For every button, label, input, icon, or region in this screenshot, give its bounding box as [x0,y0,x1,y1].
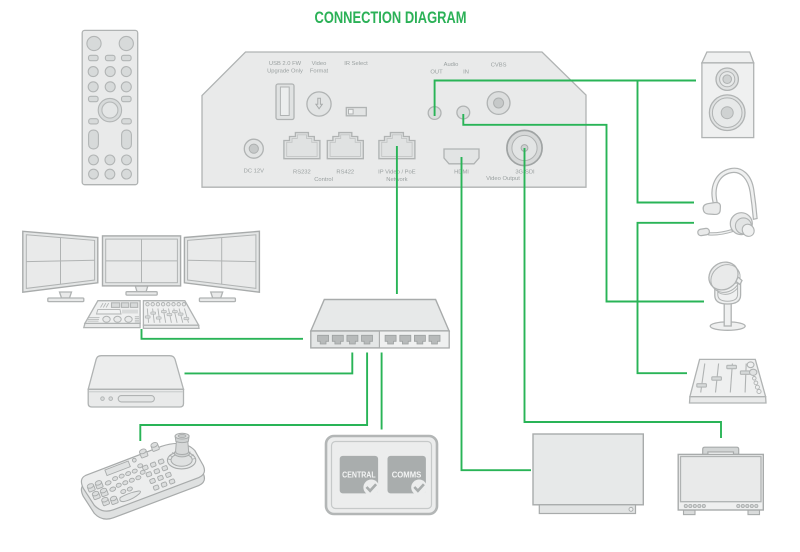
svg-text:DC 12V: DC 12V [244,169,264,175]
svg-text:CVBS: CVBS [491,63,507,69]
svg-text:RS232: RS232 [293,170,311,176]
svg-text:Video: Video [312,61,327,67]
svg-text:IR Select: IR Select [344,61,368,67]
svg-text:USB 2.0 FW: USB 2.0 FW [269,61,302,67]
svg-text:IN: IN [463,70,469,76]
svg-text:Video Output: Video Output [486,176,520,182]
svg-text:COMMS: COMMS [392,470,422,480]
svg-text:Format: Format [310,69,329,75]
svg-text:CENTRAL: CENTRAL [342,470,376,480]
svg-text:CONNECTION DIAGRAM: CONNECTION DIAGRAM [315,8,467,27]
svg-text:OUT: OUT [430,70,443,76]
svg-text:RS422: RS422 [336,170,354,176]
svg-text:Upgrade Only: Upgrade Only [267,69,303,75]
svg-text:Control: Control [314,177,333,183]
svg-text:Audio: Audio [444,62,459,68]
